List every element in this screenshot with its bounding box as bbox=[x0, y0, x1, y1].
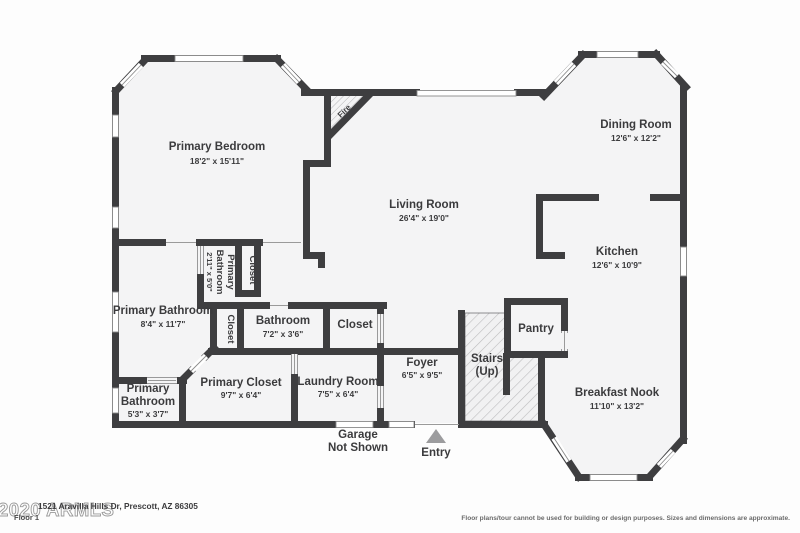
svg-text:Primary: Primary bbox=[225, 254, 236, 290]
entry-arrow-icon bbox=[426, 429, 446, 443]
entry-label: Entry bbox=[421, 447, 451, 459]
svg-text:Living Room: Living Room bbox=[389, 199, 459, 211]
svg-text:Bathroom: Bathroom bbox=[256, 315, 310, 327]
floor-label: Floor 1 bbox=[14, 513, 39, 522]
svg-text:(Up): (Up) bbox=[476, 366, 499, 378]
svg-text:Closet: Closet bbox=[225, 314, 236, 344]
svg-text:Primary Closet: Primary Closet bbox=[200, 377, 281, 389]
svg-text:Breakfast Nook: Breakfast Nook bbox=[575, 387, 660, 399]
svg-text:Pantry: Pantry bbox=[518, 323, 554, 335]
svg-text:11'10" x 13'2": 11'10" x 13'2" bbox=[590, 401, 644, 411]
room-label-closet-hall: Closet bbox=[337, 319, 372, 331]
footer: 2020 ARMLS 1521 Aravilla Hills Dr, Presc… bbox=[0, 499, 790, 522]
svg-text:Primary Bedroom: Primary Bedroom bbox=[169, 141, 266, 153]
garage-label: Garage Not Shown bbox=[328, 429, 388, 454]
svg-text:12'6" x 12'2": 12'6" x 12'2" bbox=[611, 133, 661, 143]
room-label-closet-lower: Closet bbox=[225, 314, 236, 344]
svg-text:18'2" x 15'11": 18'2" x 15'11" bbox=[190, 156, 244, 166]
floorplan-page: Primary Bedroom 18'2" x 15'11" Dining Ro… bbox=[0, 0, 800, 533]
svg-text:7'2" x 3'6": 7'2" x 3'6" bbox=[263, 329, 303, 339]
room-label-foyer: Foyer 6'5" x 9'5" bbox=[402, 357, 442, 380]
address-text: 1521 Aravilla Hills Dr, Prescott, AZ 863… bbox=[38, 501, 198, 511]
room-label-closet-upper: Closet bbox=[247, 255, 258, 285]
svg-text:12'6" x 10'9": 12'6" x 10'9" bbox=[592, 260, 642, 270]
svg-text:2'11" x 5'0": 2'11" x 5'0" bbox=[205, 252, 214, 292]
svg-text:Primary Bathroom: Primary Bathroom bbox=[113, 305, 213, 317]
svg-text:Foyer: Foyer bbox=[406, 357, 438, 369]
disclaimer-text: Floor plans/tour cannot be used for buil… bbox=[461, 515, 790, 522]
room-label-primary-bathroom-small: Primary Bathroom 2'11" x 5'0" bbox=[205, 250, 236, 295]
svg-text:Bathroom: Bathroom bbox=[121, 396, 175, 408]
svg-text:Stairs: Stairs bbox=[471, 353, 503, 365]
svg-text:26'4" x 19'0": 26'4" x 19'0" bbox=[399, 213, 449, 223]
svg-text:Closet: Closet bbox=[247, 255, 258, 285]
svg-text:Entry: Entry bbox=[421, 447, 451, 459]
svg-text:6'5" x 9'5": 6'5" x 9'5" bbox=[402, 370, 442, 380]
svg-text:Garage: Garage bbox=[338, 429, 378, 441]
svg-text:Closet: Closet bbox=[337, 319, 372, 331]
svg-text:8'4" x 11'7": 8'4" x 11'7" bbox=[141, 319, 186, 329]
svg-text:9'7" x 6'4": 9'7" x 6'4" bbox=[221, 390, 261, 400]
room-label-primary-bathroom-2: Primary Bathroom 5'3" x 3'7" bbox=[121, 383, 175, 419]
svg-text:Laundry Room: Laundry Room bbox=[297, 376, 378, 388]
room-label-stairs: Stairs (Up) bbox=[471, 353, 503, 378]
svg-text:5'3" x 3'7": 5'3" x 3'7" bbox=[128, 409, 168, 419]
svg-text:Primary: Primary bbox=[127, 383, 170, 395]
svg-text:Kitchen: Kitchen bbox=[596, 246, 638, 258]
svg-text:7'5" x 6'4": 7'5" x 6'4" bbox=[318, 389, 358, 399]
svg-text:Dining Room: Dining Room bbox=[600, 119, 672, 131]
room-label-pantry: Pantry bbox=[518, 323, 554, 335]
floorplan-drawing: Primary Bedroom 18'2" x 15'11" Dining Ro… bbox=[0, 0, 800, 533]
svg-text:Bathroom: Bathroom bbox=[214, 250, 225, 295]
svg-text:Not Shown: Not Shown bbox=[328, 442, 388, 454]
